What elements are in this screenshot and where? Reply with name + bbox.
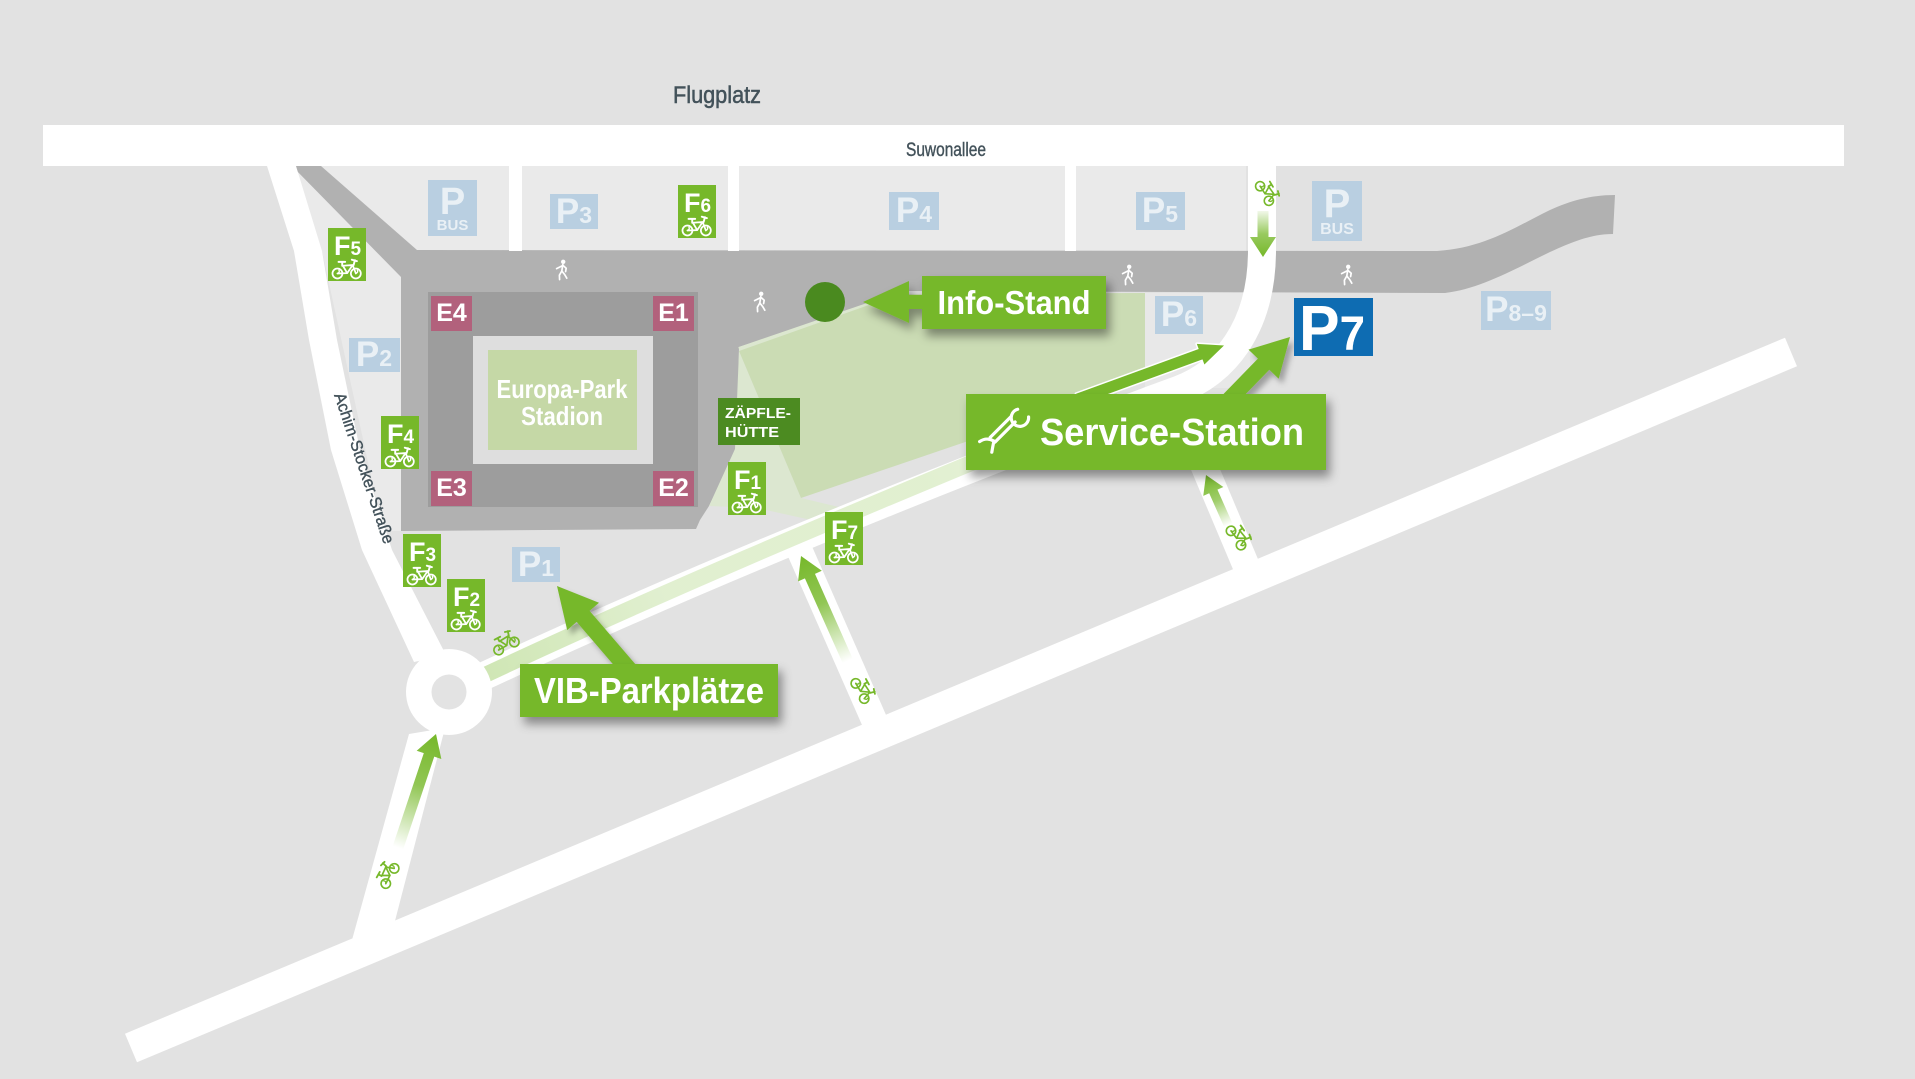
svg-text:VIB-Parkplätze: VIB-Parkplätze	[534, 670, 764, 711]
svg-text:BUS: BUS	[1320, 221, 1354, 238]
svg-text:BUS: BUS	[437, 217, 469, 234]
svg-text:E3: E3	[436, 474, 467, 502]
svg-text:ZÄPFLE-: ZÄPFLE-	[725, 405, 791, 422]
svg-text:E2: E2	[658, 474, 689, 502]
svg-text:P: P	[1324, 182, 1351, 226]
svg-text:Service-Station: Service-Station	[1040, 412, 1304, 454]
svg-text:HÜTTE: HÜTTE	[725, 424, 779, 441]
svg-text:Suwonallee: Suwonallee	[906, 140, 986, 161]
svg-text:Flugplatz: Flugplatz	[673, 82, 761, 109]
svg-text:E1: E1	[658, 299, 689, 327]
svg-text:Stadion: Stadion	[521, 401, 603, 431]
svg-text:E4: E4	[436, 299, 467, 327]
svg-text:Europa-Park: Europa-Park	[497, 374, 628, 404]
svg-text:Info-Stand: Info-Stand	[938, 284, 1091, 321]
